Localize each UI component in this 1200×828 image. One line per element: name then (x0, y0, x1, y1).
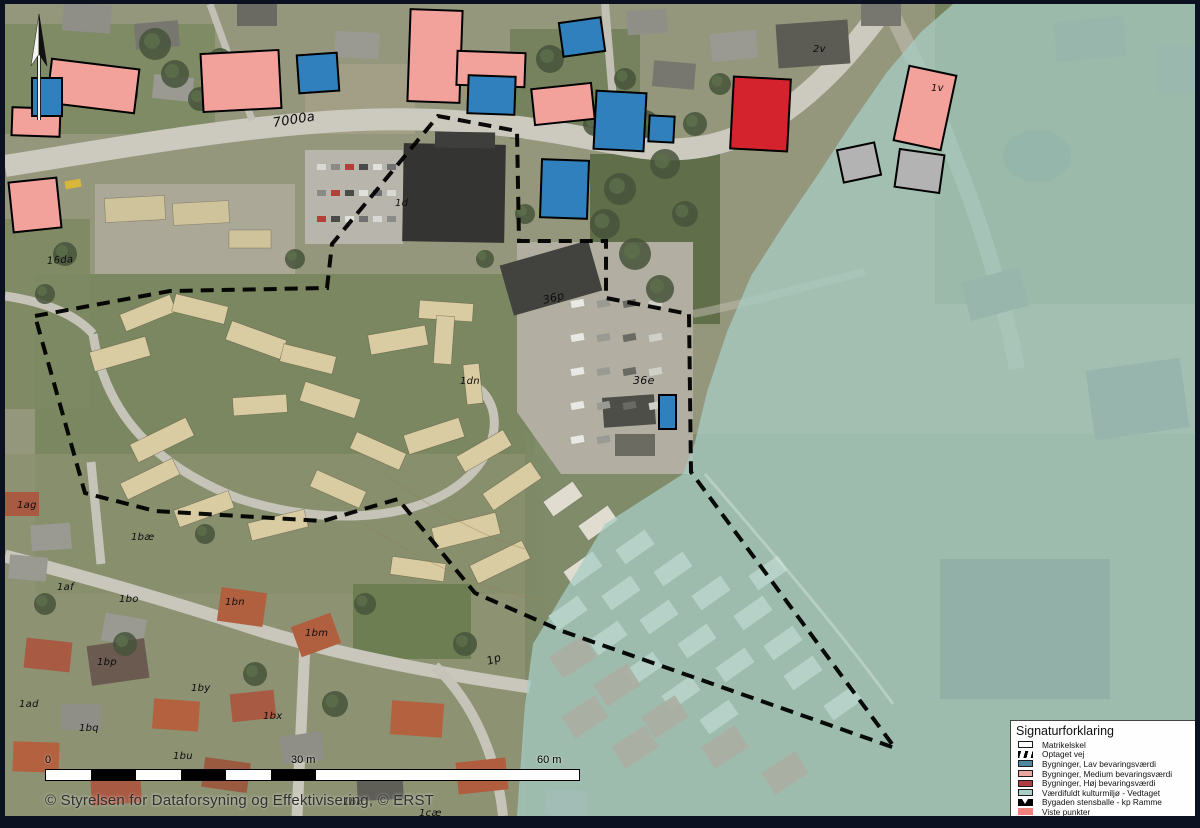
parcel-label-2v: 2v (813, 44, 826, 55)
legend-item: Viste punkter (1016, 807, 1191, 816)
building-gray (895, 149, 945, 193)
legend-panel: Signaturforklaring MatrikelskelOptaget v… (1010, 720, 1195, 816)
legend-swatch-fill (1018, 760, 1033, 767)
scale-tick-0: 0 (45, 754, 51, 766)
building-blue (648, 115, 674, 142)
legend-item: Bygninger, Lav bevaringsværdi (1016, 759, 1191, 769)
parcel-label-1bn: 1bn (225, 597, 245, 608)
legend-item-label: Værdifuldt kulturmiljø - Vedtaget (1042, 788, 1160, 798)
aerial-basemap (5, 4, 1195, 816)
legend-swatch-kp (1018, 799, 1033, 806)
building-blue (297, 53, 340, 94)
map-canvas[interactable]: 7000a16da1d36p36e1dn1ag1bæ1af1bo1bn1bm1b… (5, 4, 1195, 816)
building-salmon (531, 83, 594, 125)
building-blue (659, 395, 676, 429)
legend-item-label: Bygaden stensballe - kp Ramme (1042, 797, 1162, 807)
parcel-label-1ag: 1ag (17, 500, 37, 511)
legend-items: MatrikelskelOptaget vejBygninger, Lav be… (1016, 740, 1191, 816)
screenshot-root: { "map": { "scale_bar": {"tick0": "0", "… (0, 0, 1200, 828)
parcel-label-1bp: 1bp (97, 657, 117, 668)
parcel-label-1af: 1af (57, 582, 74, 593)
parcel-label-1bæ: 1bæ (131, 532, 155, 543)
parcel-label-1bm: 1bm (305, 628, 328, 639)
legend-item: Bygninger, Medium bevaringsværdi (1016, 769, 1191, 779)
legend-item: Bygaden stensballe - kp Ramme (1016, 798, 1191, 808)
north-arrow-icon (25, 8, 55, 124)
legend-item-label: Optaget vej (1042, 749, 1084, 759)
legend-swatch-fill (1018, 770, 1033, 777)
legend-swatch-outline (1018, 741, 1033, 748)
parcel-label-1d: 1d (395, 198, 408, 209)
building-salmon (407, 9, 462, 103)
legend-item: Matrikelskel (1016, 740, 1191, 750)
parcel-label-16da: 16da (47, 254, 74, 267)
parcel-label-1by: 1by (191, 683, 211, 694)
legend-item-label: Bygninger, Lav bevaringsværdi (1042, 759, 1156, 769)
building-salmon (9, 178, 62, 233)
legend-title: Signaturforklaring (1016, 724, 1191, 738)
legend-swatch-fill (1018, 780, 1033, 787)
parcel-label-1ad: 1ad (19, 699, 39, 710)
building-salmon (201, 50, 282, 112)
legend-item-label: Bygninger, Høj bevaringsværdi (1042, 778, 1155, 788)
legend-item: Værdifuldt kulturmiljø - Vedtaget (1016, 788, 1191, 798)
legend-item: Optaget vej (1016, 750, 1191, 760)
scale-bar: 0 30 m 60 m (45, 754, 605, 788)
parcel-label-1bq: 1bq (79, 723, 99, 734)
parcel-label-1v: 1v (931, 83, 944, 94)
building-blue (467, 75, 515, 115)
legend-item-label: Bygninger, Medium bevaringsværdi (1042, 769, 1172, 779)
copyright-text: © Styrelsen for Dataforsyning og Effekti… (45, 792, 434, 809)
parcel-label-1bo: 1bo (119, 594, 139, 605)
building-blue (540, 159, 589, 219)
parcel-label-1bx: 1bx (263, 711, 283, 722)
parcel-label-1cæ: 1cæ (419, 808, 442, 816)
parcel-label-1dn: 1dn (460, 376, 480, 387)
building-blue (559, 17, 605, 57)
legend-item-label: Viste punkter (1042, 807, 1090, 816)
parcel-label-36e: 36e (633, 374, 655, 387)
building-gray (837, 142, 881, 182)
legend-item-label: Matrikelskel (1042, 740, 1086, 750)
legend-item: Bygninger, Høj bevaringsværdi (1016, 778, 1191, 788)
legend-swatch-hatch (1018, 751, 1033, 758)
scale-bar-graphic (45, 769, 580, 781)
scale-tick-30m: 30 m (291, 754, 315, 766)
legend-swatch-noborder (1018, 808, 1033, 815)
building-red (730, 77, 791, 152)
building-blue (594, 91, 647, 152)
scale-tick-60m: 60 m (537, 754, 561, 766)
legend-swatch-fill (1018, 789, 1033, 796)
